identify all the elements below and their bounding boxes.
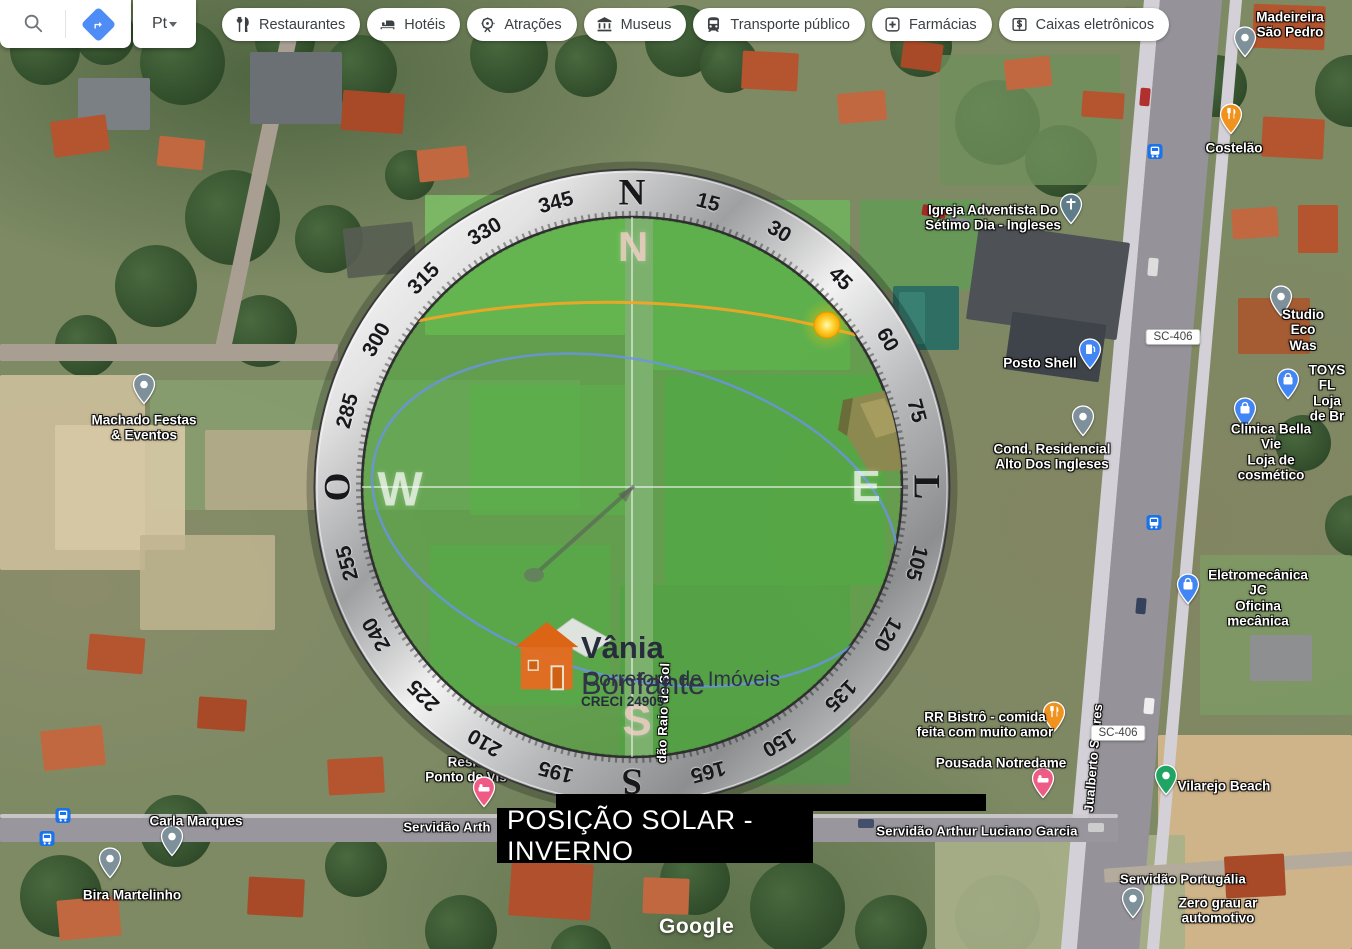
map-decoration [1275,415,1331,471]
search-icon [22,12,44,37]
chip-hoteis[interactable]: Hotéis [367,8,460,41]
map-decoration [860,200,980,290]
map-decoration [642,877,689,915]
map-decoration [1298,205,1338,253]
transit-icon [705,16,722,33]
map-decoration [665,375,885,585]
map-decoration [341,90,406,134]
map-decoration [1088,823,1104,832]
map-decoration [40,725,106,771]
map-decoration [115,245,197,327]
map-decoration [205,430,325,510]
attractions-icon [479,16,496,33]
chip-label: Museus [621,17,672,33]
map-decoration [1004,56,1053,91]
pharmacies-icon [884,16,901,33]
category-chips: RestaurantesHotéisAtraçõesMuseusTranspor… [222,8,1169,41]
map-decoration [1139,88,1151,107]
language-label: Pt [152,15,167,33]
map-decoration [56,895,121,940]
chip-label: Caixas eletrônicos [1036,17,1154,33]
chip-museus[interactable]: Museus [584,8,687,41]
map-decoration [1081,91,1125,120]
chip-label: Restaurantes [259,17,345,33]
chip-label: Atrações [504,17,561,33]
chip-transporte-publico[interactable]: Transporte público [693,8,865,41]
map-decoration [1147,258,1159,277]
chip-label: Transporte público [730,17,850,33]
map-decoration [1250,635,1312,681]
map-decoration [1238,298,1310,354]
map-decoration [55,425,185,550]
map-decoration [1224,853,1286,898]
map-canvas[interactable]: Resid Ponto de Vis [0,0,1352,949]
map-decoration [1143,698,1154,715]
chip-farmacias[interactable]: Farmácias [872,8,992,41]
map-decoration [508,859,594,921]
map-decoration [1231,206,1279,239]
chevron-down-icon [169,22,177,27]
map-decoration [1325,495,1352,557]
map-decoration [855,895,927,949]
map-decoration [416,145,469,182]
map-decoration [140,535,275,630]
map-decoration [0,344,338,361]
hotels-icon [379,16,396,33]
directions-icon [81,6,116,41]
map-decoration [837,90,887,124]
map-decoration [630,200,850,370]
top-toolbar: Pt RestaurantesHotéisAtraçõesMuseusTrans… [0,0,1352,60]
map-decoration [425,195,625,335]
language-button[interactable]: Pt [133,0,196,48]
chip-atracoes[interactable]: Atrações [467,8,576,41]
map-decoration [343,221,418,278]
watermark-creci: CRECI 24909 [581,694,664,709]
chip-label: Hotéis [404,17,445,33]
map-decoration [197,696,247,731]
map-decoration [550,925,612,949]
map-decoration [247,877,305,918]
realtor-watermark: Vânia Bonfante Corretora de Imóveis CREC… [515,600,785,722]
map-decoration [157,136,206,171]
restaurants-icon [234,16,251,33]
search-button[interactable] [0,0,65,48]
map-decoration [1261,116,1325,159]
watermark-subtitle: Corretora de Imóveis [584,668,780,692]
map-decoration [1158,735,1352,949]
map-decoration [87,634,146,675]
map-decoration [425,895,497,949]
map-decoration [327,757,385,796]
map-decoration [625,172,653,832]
language-card: Pt [133,0,196,48]
chip-label: Farmácias [909,17,977,33]
google-logo[interactable]: Google [659,915,734,939]
map-decoration [899,292,925,344]
map-decoration [858,819,874,828]
map-decoration [50,114,110,157]
search-card [0,0,131,48]
directions-button[interactable] [66,0,131,48]
map-decoration [325,835,387,897]
map-decoration [470,385,630,515]
map-decoration [250,52,342,124]
solar-position-label: POSIÇÃO SOLAR - INVERNO [497,808,813,863]
map-decoration [1315,55,1352,127]
atms-icon [1011,16,1028,33]
map-decoration [750,860,845,949]
watermark-name-bold: Vânia [581,630,664,665]
museums-icon [596,16,613,33]
map-decoration [1004,312,1106,383]
chip-caixas-eletronicos[interactable]: Caixas eletrônicos [999,8,1169,41]
chip-restaurantes[interactable]: Restaurantes [222,8,360,41]
map-decoration [1135,598,1146,615]
